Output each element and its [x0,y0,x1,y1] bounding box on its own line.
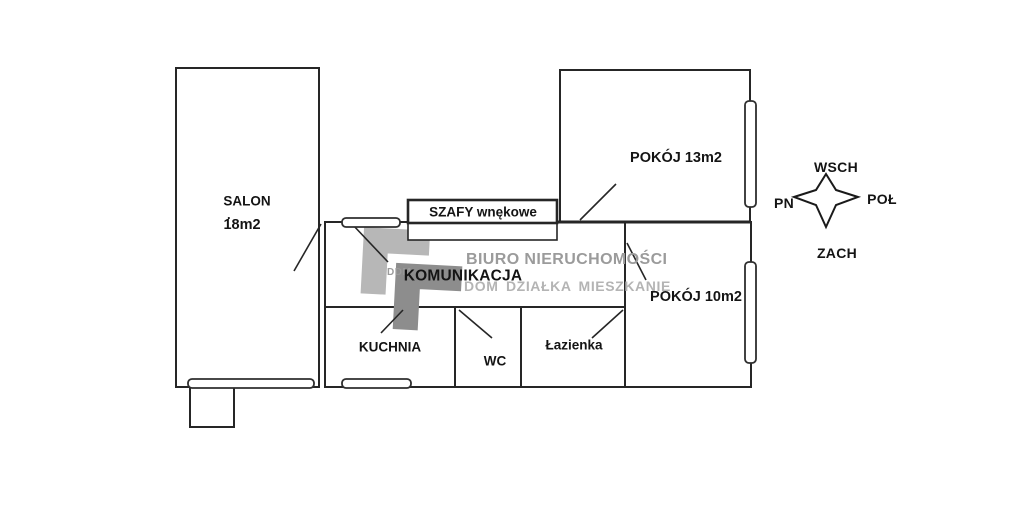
room-label-salon: SALON [223,194,270,208]
door-salon [294,224,321,271]
window-pokoj13-right [745,101,756,207]
room-label-pokoj13: POKÓJ 13m2 [630,151,722,166]
compass-label-pn: PN [774,196,794,210]
walls [176,68,751,427]
door-lazienka [592,310,623,338]
door-pokoj13 [580,184,616,220]
room-area-salon: 18m2 [223,218,260,233]
window-kuchnia-bottom [342,379,411,388]
door-wc [459,310,492,338]
compass-star-icon [794,174,858,227]
logo-chevron-dark [380,251,462,330]
sliding-door-komunikacja [342,218,400,227]
room-label-lazienka: Łazienka [545,338,602,352]
window-markers [188,101,756,388]
compass-label-zach: ZACH [817,246,857,260]
watermark-line1: BIURO NIERUCHOMOŚCI [466,252,667,268]
szafy-label: SZAFY wnękowe [429,205,537,219]
room-label-komunikacja: KOMUNIKACJA [404,268,522,284]
compass-label-wsch: WSCH [814,160,858,174]
room-label-pokoj10: POKÓJ 10m2 [650,290,742,305]
compass-label-pol: POŁ [867,192,897,206]
szafy-lower-box [408,223,557,240]
window-pokoj10-right [745,262,756,363]
pokoj13-walls [560,70,750,222]
floorplan-canvas: DDM BIURO NIERUCHOMOŚCI DOM DZIAŁKA MIES… [0,0,1024,522]
window-salon-bottom [188,379,314,388]
room-label-kuchnia: KUCHNIA [359,340,421,354]
room-label-wc: WC [484,354,507,368]
balcony-outline [190,387,234,427]
